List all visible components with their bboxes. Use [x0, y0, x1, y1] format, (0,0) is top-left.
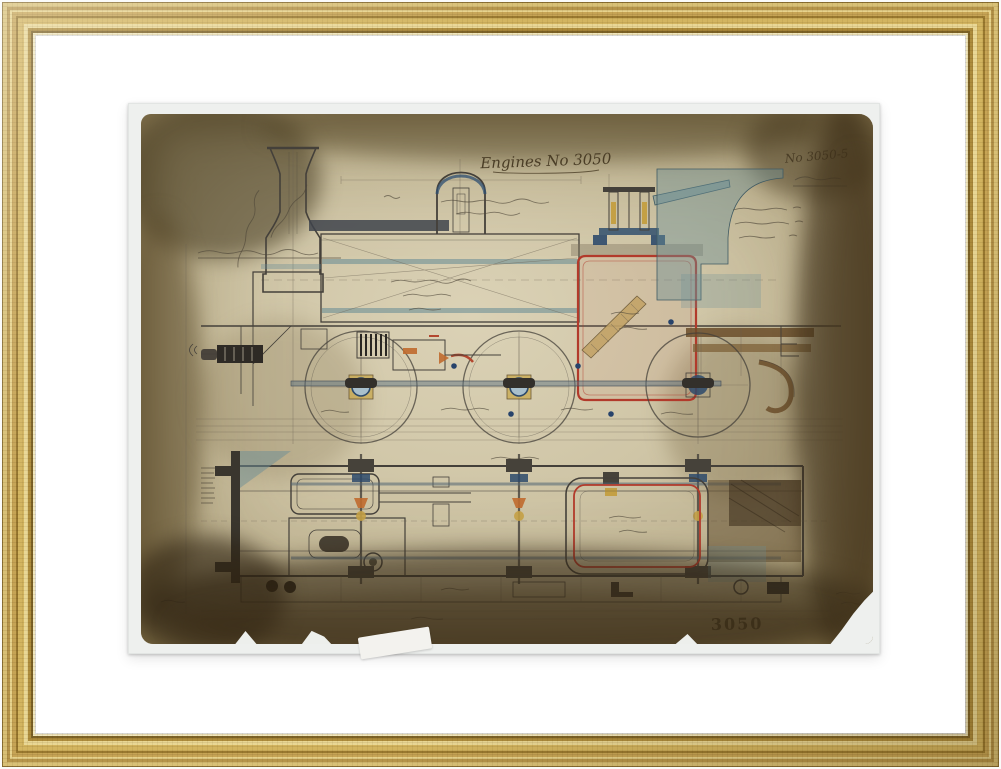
- drawing-paper: Engines No 3050 No 3050-5 3050: [141, 114, 873, 644]
- figure-table: [201, 468, 215, 503]
- framed-print-photo: Engines No 3050 No 3050-5 3050: [0, 0, 1001, 769]
- mat-board: Engines No 3050 No 3050-5 3050: [36, 36, 965, 733]
- front-buffer: [190, 344, 264, 363]
- title-inscription: Engines No 3050: [479, 150, 612, 173]
- side-elevation-view: [190, 148, 815, 443]
- boiler: [261, 234, 579, 322]
- cab-plate: [657, 169, 783, 308]
- steam-pipe: [309, 220, 449, 231]
- print-margin: Engines No 3050 No 3050-5 3050: [128, 103, 880, 654]
